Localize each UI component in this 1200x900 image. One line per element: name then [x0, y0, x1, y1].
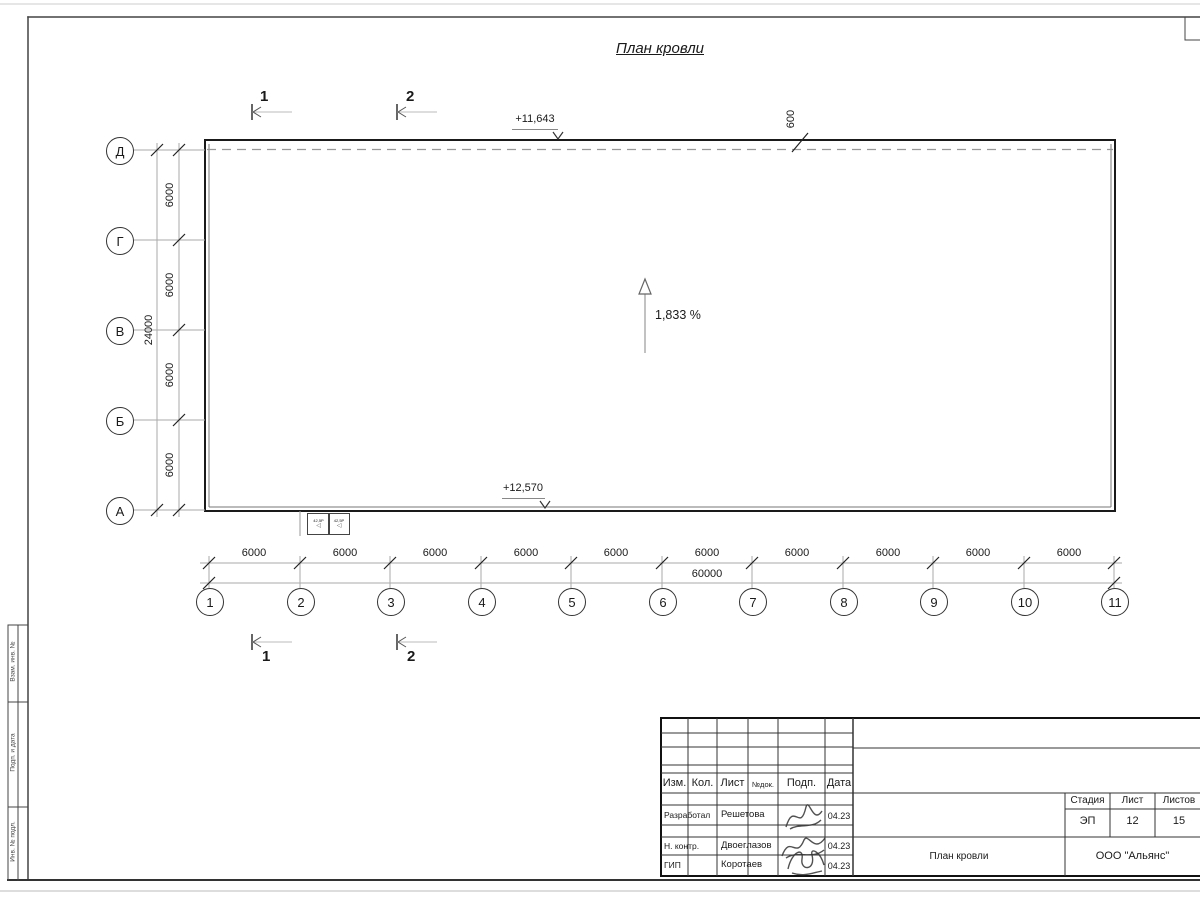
titleblock-role: Н. контр.: [664, 841, 699, 851]
titleblock-company: ООО "Альянс": [1065, 850, 1200, 862]
section-arrows: [252, 104, 437, 650]
stage-value: ЭП: [1065, 815, 1110, 827]
dim-col-segment: 6000: [1049, 547, 1089, 559]
dimension-lines: [132, 143, 1122, 588]
elevation-arrows: [502, 130, 563, 509]
sheet-number-value: 12: [1110, 815, 1155, 827]
dimension-ticks: [151, 133, 1120, 589]
section-mark-2-bottom: 2: [407, 648, 415, 665]
section-mark-1-top: 1: [260, 88, 268, 105]
dim-row-segment: 6000: [164, 445, 176, 485]
frame-side-label: Взам. инв. №: [10, 622, 17, 702]
dim-col-segment: 6000: [687, 547, 727, 559]
titleblock-header-list: Лист: [717, 777, 748, 789]
axis-bubble-row-b: Б: [106, 407, 134, 435]
signature-korotaev: [788, 851, 824, 875]
section-mark-2-top: 2: [406, 88, 414, 105]
axis-bubble-col-11: 11: [1101, 588, 1129, 616]
dim-col-total: 60000: [682, 568, 732, 580]
dim-col-segment: 6000: [506, 547, 546, 559]
dim-row-total: 24000: [143, 300, 155, 360]
dim-row-segment: 6000: [164, 265, 176, 305]
sheet-frame-lines: [0, 4, 1200, 891]
axis-bubble-col-9: 9: [920, 588, 948, 616]
titleblock-date: 04.23: [825, 841, 853, 851]
frame-side-label: Подп. и дата: [10, 713, 17, 793]
stage-label: Стадия: [1065, 795, 1110, 806]
titleblock-name: Коротаев: [721, 859, 762, 870]
axis-bubble-col-1: 1: [196, 588, 224, 616]
titleblock-header-kol: Кол.: [688, 777, 717, 789]
axis-bubble-col-6: 6: [649, 588, 677, 616]
titleblock-header-ndok: №док.: [748, 780, 778, 789]
sheet-number-label: Лист: [1110, 795, 1155, 806]
sheets-total-label: Листов: [1155, 795, 1200, 806]
dim-col-segment: 6000: [777, 547, 817, 559]
axis-bubble-row-v: В: [106, 317, 134, 345]
signature-dvoeglazov: [782, 838, 825, 858]
titleblock-name: Двоеглазов: [721, 840, 772, 851]
titleblock-role: ГИП: [664, 860, 681, 870]
dim-col-segment: 6000: [234, 547, 274, 559]
drawing-title: План кровли: [520, 40, 800, 57]
building-outline: [205, 140, 1115, 511]
dim-row-segment: 6000: [164, 175, 176, 215]
signature-reshetova: [786, 805, 822, 829]
dim-col-segment: 6000: [868, 547, 908, 559]
axis-bubble-col-2: 2: [287, 588, 315, 616]
parapet-offset-label: 600: [785, 99, 797, 139]
axis-bubble-col-7: 7: [739, 588, 767, 616]
dim-col-segment: 6000: [415, 547, 455, 559]
axis-bubble-col-5: 5: [558, 588, 586, 616]
frame-side-label: Инв. № подл.: [10, 802, 17, 882]
funnel-arrow-icon: ◁: [316, 523, 321, 529]
titleblock-doc-title: План кровли: [853, 851, 1065, 862]
slope-label: 1,833 %: [655, 308, 701, 322]
funnel-arrow-icon: ◁: [337, 523, 342, 529]
slope-arrow: [639, 279, 651, 353]
detail-box: 42,5Р ◁: [307, 513, 330, 535]
titleblock-header-data: Дата: [825, 777, 853, 789]
dim-col-segment: 6000: [596, 547, 636, 559]
axis-bubble-row-a: А: [106, 497, 134, 525]
titleblock-name: Решетова: [721, 809, 765, 820]
dim-col-segment: 6000: [325, 547, 365, 559]
axis-bubble-col-3: 3: [377, 588, 405, 616]
titleblock-role: Разработал: [664, 810, 710, 820]
titleblock-header-podp: Подп.: [778, 777, 825, 789]
axis-bubble-row-g: Г: [106, 227, 134, 255]
drawing-linework: [0, 0, 1200, 900]
elevation-top-label: +11,643: [500, 113, 570, 125]
titleblock-date: 04.23: [825, 861, 853, 871]
drawing-sheet: План кровли 1 2 1 2 +11,643 +12,570 600 …: [0, 0, 1200, 900]
titleblock-date: 04.23: [825, 811, 853, 821]
axis-bubble-col-10: 10: [1011, 588, 1039, 616]
axis-bubble-col-4: 4: [468, 588, 496, 616]
titleblock-header-izm: Изм.: [661, 777, 688, 789]
elevation-bottom-label: +12,570: [488, 482, 558, 494]
dim-row-segment: 6000: [164, 355, 176, 395]
section-mark-1-bottom: 1: [262, 648, 270, 665]
dim-col-segment: 6000: [958, 547, 998, 559]
axis-bubble-col-8: 8: [830, 588, 858, 616]
sheets-total-value: 15: [1155, 815, 1200, 827]
axis-bubble-row-d: Д: [106, 137, 134, 165]
detail-box: 42,5Р ◁: [328, 513, 350, 535]
